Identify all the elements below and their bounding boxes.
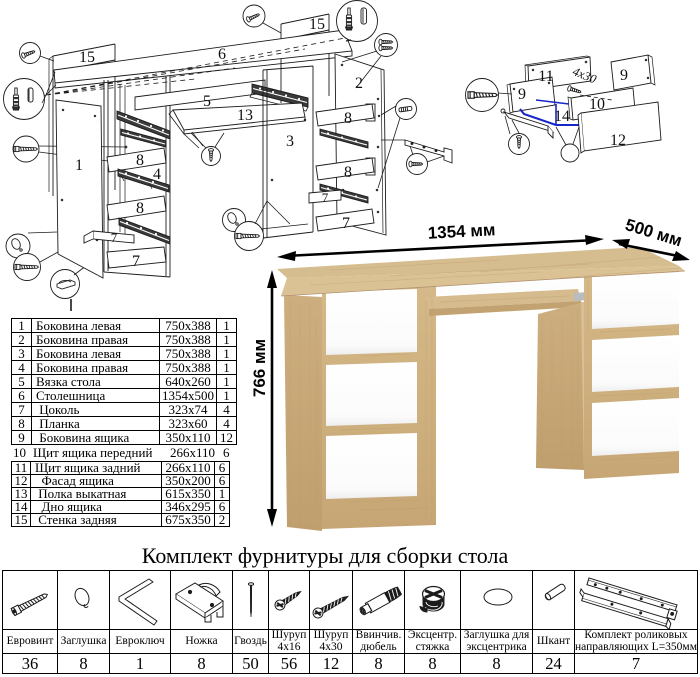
svg-text:3: 3 [286,133,294,150]
svg-text:1: 1 [75,157,83,174]
svg-text:15: 15 [309,16,325,33]
svg-text:11: 11 [538,68,553,85]
svg-text:6: 6 [218,46,226,63]
svg-text:14: 14 [554,108,570,125]
svg-text:8: 8 [136,200,144,217]
svg-text:15: 15 [79,49,95,66]
svg-text:500 мм: 500 мм [623,215,684,250]
svg-text:8: 8 [344,110,352,127]
svg-text:4: 4 [153,166,161,183]
svg-text:9: 9 [620,67,628,84]
svg-text:8: 8 [136,152,144,169]
svg-text:7: 7 [132,253,140,270]
svg-text:8: 8 [344,164,352,181]
svg-text:2: 2 [355,75,363,92]
svg-text:5: 5 [203,93,211,110]
svg-text:766 мм: 766 мм [250,339,269,397]
svg-text:1354 мм: 1354 мм [427,220,496,243]
svg-text:13: 13 [237,107,253,124]
svg-text:7: 7 [111,230,118,245]
svg-text:9: 9 [518,86,526,103]
svg-text:7: 7 [322,190,329,205]
svg-text:12: 12 [610,132,626,149]
